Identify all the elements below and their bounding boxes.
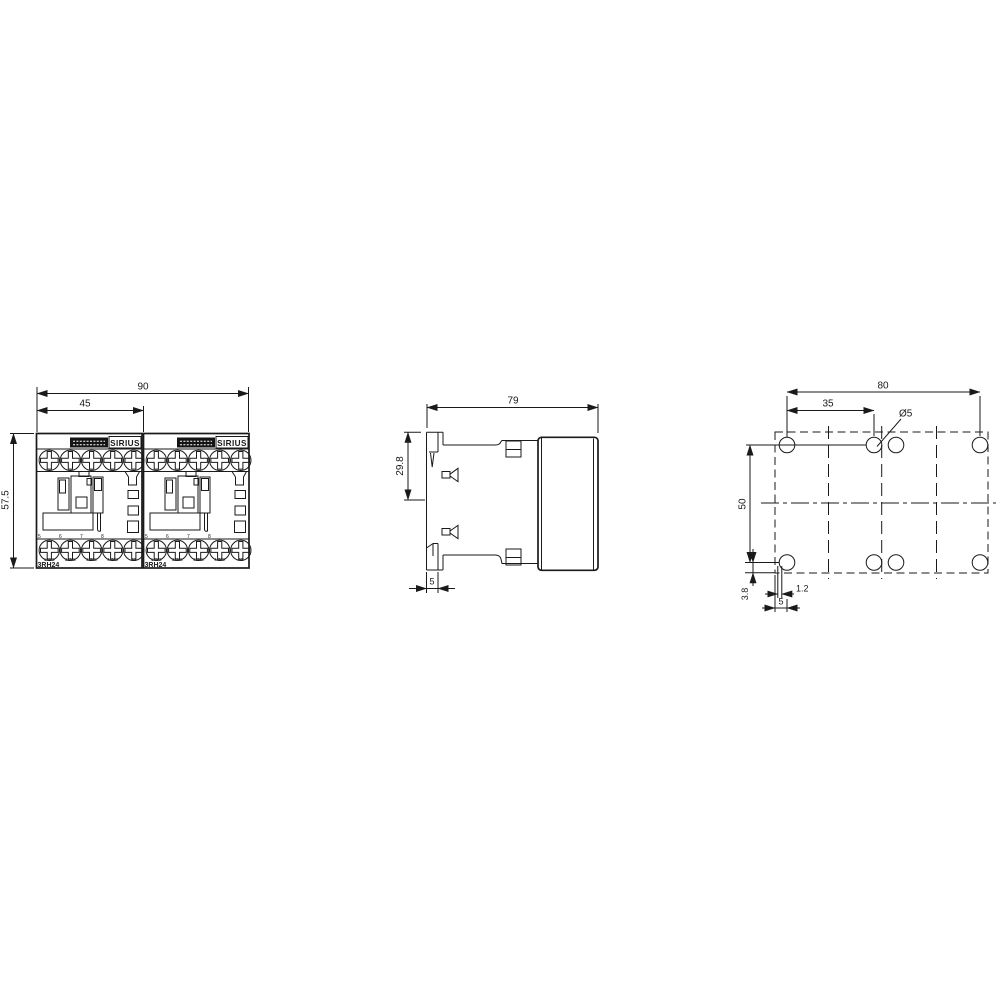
dim-module-width-label: 45 [79,399,91,410]
snap-hook-top [442,468,458,481]
dim-hole-span-width-label: 80 [877,381,889,392]
drilling-plan: 80 35 Ø5 50 3.8 1.2 5 [738,381,997,613]
dim-bottom-edge-offset-label: 3.8 [740,588,750,601]
snap-hook-bottom [442,525,458,538]
dim-depth-label: 79 [507,396,519,407]
dim-height-label: 57.5 [1,490,12,510]
side-dimensions: 79 29.8 5 [395,396,598,594]
dim-hole-span-height-label: 50 [738,498,749,510]
hole-diameter-label: Ø5 [899,409,913,420]
front-view: 90 45 57.5 [1,382,252,569]
dim-module-span-label: 35 [822,399,834,410]
side-view: 79 29.8 5 [395,396,598,594]
dim-left-edge-offset-label: 5 [778,597,783,607]
dim-total-width-label: 90 [137,382,149,393]
dim-clip-height-label: 29.8 [395,456,406,476]
module-right [144,434,252,569]
dim-rail-width-label: 5 [429,577,434,587]
fixing-slot [778,566,782,598]
drill-holes [778,437,988,598]
side-profile [427,432,599,570]
front-dimensions: 90 45 57.5 [1,382,249,569]
technical-drawing: SIRIUS [0,0,1000,1000]
drill-dimensions: 80 35 Ø5 50 3.8 1.2 5 [738,381,981,613]
coil-housing-block [538,437,598,570]
dimension-drawing-canvas: SIRIUS [0,0,1000,1000]
side-terminal-screws [506,441,521,565]
module-left [37,434,145,569]
dim-slot-width-label: 1.2 [796,584,809,594]
